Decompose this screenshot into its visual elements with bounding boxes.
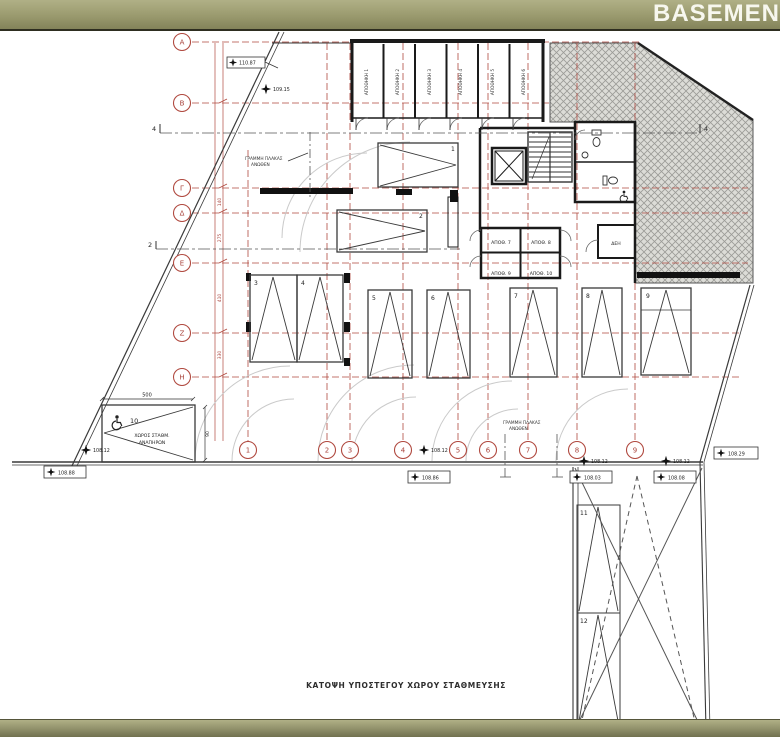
parking-number-4: 4 — [301, 280, 305, 287]
parking-number-2: 2 — [419, 213, 423, 220]
svg-text:3: 3 — [348, 447, 352, 455]
parking-space-7: 7 — [510, 288, 557, 377]
svg-text:110.87: 110.87 — [239, 61, 256, 67]
disabled-space-label-1: ΧΩΡΟΣ ΣΤΑΘΜ. — [134, 433, 169, 439]
svg-text:4: 4 — [401, 447, 406, 455]
grid-bubble-col-6: 6 — [480, 442, 497, 459]
svg-text:Η: Η — [179, 374, 184, 382]
svg-text:6: 6 — [486, 447, 491, 455]
svg-text:9: 9 — [633, 447, 637, 455]
grid-bubble-col-7: 7 — [520, 442, 537, 459]
parking-space-11: 11 — [577, 505, 620, 613]
grid-bubble-row-A: Α — [174, 34, 191, 51]
parking-space-6: 6 — [427, 290, 470, 378]
grid-bubble-row-D: Δ — [174, 205, 191, 222]
chain-dim-330: 330 — [217, 351, 223, 360]
svg-text:109.15: 109.15 — [273, 87, 290, 93]
svg-text:Ε: Ε — [180, 260, 184, 268]
grid-bubble-col-9: 9 — [627, 442, 644, 459]
storage-room-6: ΑΠΟΘΗΚΗ 6 — [521, 69, 527, 96]
svg-text:Γ: Γ — [180, 185, 184, 193]
parking-number-3: 3 — [254, 280, 258, 287]
level-marker-108-29: 108.29 — [714, 447, 758, 459]
grid-bubble-row-H: Η — [174, 369, 191, 386]
storage-room-2: ΑΠΟΘΗΚΗ 2 — [395, 69, 401, 96]
level-marker-108-08: 108.08 — [654, 471, 696, 483]
wheelchair-icon — [112, 415, 122, 429]
svg-text:ΓΡΑΜΜΗ ΠΛΑΚΑΣ: ΓΡΑΜΜΗ ΠΛΑΚΑΣ — [245, 156, 283, 162]
svg-text:ΓΡΑΜΜΗ ΠΛΑΚΑΣ: ΓΡΑΜΜΗ ΠΛΑΚΑΣ — [503, 420, 541, 426]
svg-text:Α: Α — [180, 39, 185, 47]
room-apoth-7: ΑΠΟΘ. 7 — [491, 240, 511, 246]
grid-bubble-col-5: 5 — [450, 442, 467, 459]
svg-text:108.08: 108.08 — [668, 476, 685, 482]
parking-number-6: 6 — [431, 295, 435, 302]
grid-bubble-col-8: 8 — [569, 442, 586, 459]
svg-text:7: 7 — [526, 447, 530, 455]
grid-bubble-row-E: Ε — [174, 255, 191, 272]
disabled-space-label-2: ΑΝΑΠΗΡΩΝ — [139, 440, 165, 446]
grid-bubble-col-2: 2 — [319, 442, 336, 459]
parking-space-3: 3 — [250, 275, 297, 362]
parking-number-11: 11 — [580, 510, 588, 517]
parking-space-9: 9 — [641, 288, 691, 375]
svg-text:ΑΝΩΘΕΝ: ΑΝΩΘΕΝ — [251, 162, 270, 168]
grid-bubble-row-G: Γ — [174, 180, 191, 197]
parking-number-7: 7 — [514, 293, 518, 300]
parking-space-1: 1 — [378, 143, 458, 187]
svg-text:108.12: 108.12 — [93, 448, 110, 454]
section-4-right: 4 — [704, 125, 708, 133]
drawing-caption: ΚΑΤΟΨΗ ΥΠΟΣΤΕΓΟΥ ΧΩΡΟΥ ΣΤΑΘΜΕΥΣΗΣ — [306, 681, 506, 690]
parking-number-1: 1 — [451, 146, 455, 153]
svg-text:Ζ: Ζ — [180, 330, 185, 338]
grid-bubble-col-3: 3 — [342, 442, 359, 459]
grid-bubble-row-Z: Ζ — [174, 325, 191, 342]
svg-text:108.12: 108.12 — [673, 459, 690, 465]
parking-number-5: 5 — [372, 295, 376, 302]
svg-text:108.03: 108.03 — [584, 476, 601, 482]
footer-bar — [0, 719, 780, 737]
wc-area — [582, 130, 628, 202]
svg-text:Δ: Δ — [180, 210, 185, 218]
svg-text:8: 8 — [575, 447, 579, 455]
svg-text:108.29: 108.29 — [728, 452, 745, 458]
header-bar: BASEMEN — [0, 0, 780, 31]
svg-text:Β: Β — [180, 100, 185, 108]
stairs — [528, 132, 572, 182]
hatched-region — [550, 43, 753, 283]
storage-room-5: ΑΠΟΘΗΚΗ 5 — [490, 69, 496, 96]
parking-spaces: 1 2 3 4 — [102, 143, 691, 723]
grid-bubble-col-1: 1 — [240, 442, 257, 459]
parking-space-5: 5 — [368, 290, 412, 378]
level-marker-108-88: 108.88 — [44, 466, 86, 478]
room-deh: ΔΕΗ — [611, 241, 621, 247]
dim-500: 500 — [142, 393, 152, 399]
parking-space-12: 12 — [577, 613, 620, 723]
svg-text:108.86: 108.86 — [422, 476, 439, 482]
parking-number-9: 9 — [646, 293, 650, 300]
svg-text:5: 5 — [456, 447, 460, 455]
ramp-markings — [575, 468, 702, 730]
floor-plan-drawing: 140 275 410 330 — [0, 0, 780, 737]
svg-text:ΑΝΩΘΕΝ: ΑΝΩΘΕΝ — [509, 426, 528, 432]
parking-space-10-disabled: 10 ΧΩΡΟΣ ΣΤΑΘΜ. ΑΝΑΠΗΡΩΝ — [102, 405, 195, 462]
section-4-left: 4 — [152, 125, 156, 133]
section-2-left: 2 — [148, 241, 152, 249]
page-title: BASEMEN — [653, 0, 780, 28]
parking-space-2: 2 — [337, 210, 427, 252]
storage-room-4: ΑΠΟΘΗΚΗ 4 — [458, 69, 464, 96]
room-apoth-9: ΑΠΟΘ. 9 — [491, 271, 511, 277]
svg-text:108.12: 108.12 — [431, 448, 448, 454]
svg-text:1: 1 — [246, 447, 250, 455]
storage-room-3: ΑΠΟΘΗΚΗ 3 — [427, 69, 433, 96]
level-marker-109-15: 109.15 — [261, 84, 290, 94]
parking-space-8: 8 — [582, 288, 622, 377]
svg-text:2: 2 — [325, 447, 329, 455]
chain-dim-410: 410 — [217, 294, 223, 303]
chain-dim-275: 275 — [217, 234, 223, 243]
parking-number-10: 10 — [130, 417, 138, 425]
level-marker-110-87: 110.87 — [227, 57, 278, 68]
level-marker-108-03: 108.03 — [570, 471, 612, 483]
screenshot-root: BASEMEN — [0, 0, 780, 737]
dim-90: 90 — [205, 431, 211, 437]
grid-bubble-row-B: Β — [174, 95, 191, 112]
room-apoth-10: ΑΠΟΘ. 10 — [530, 271, 553, 277]
parking-space-4: 4 — [297, 275, 343, 362]
level-marker-108-12-a: 108.12 — [81, 445, 110, 455]
elevator — [492, 148, 526, 184]
wheelchair-icon — [620, 191, 628, 203]
grid-bubble-col-4: 4 — [395, 442, 412, 459]
room-apoth-8: ΑΠΟΘ. 8 — [531, 240, 551, 246]
parking-number-12: 12 — [580, 618, 588, 625]
svg-text:108.88: 108.88 — [58, 471, 75, 477]
chain-dim-140: 140 — [217, 198, 223, 207]
parking-number-8: 8 — [586, 293, 590, 300]
storage-room-1: ΑΠΟΘΗΚΗ 1 — [364, 69, 370, 96]
level-marker-108-86: 108.86 — [408, 471, 450, 483]
svg-text:108.12: 108.12 — [591, 459, 608, 465]
storage-doors — [356, 118, 598, 267]
